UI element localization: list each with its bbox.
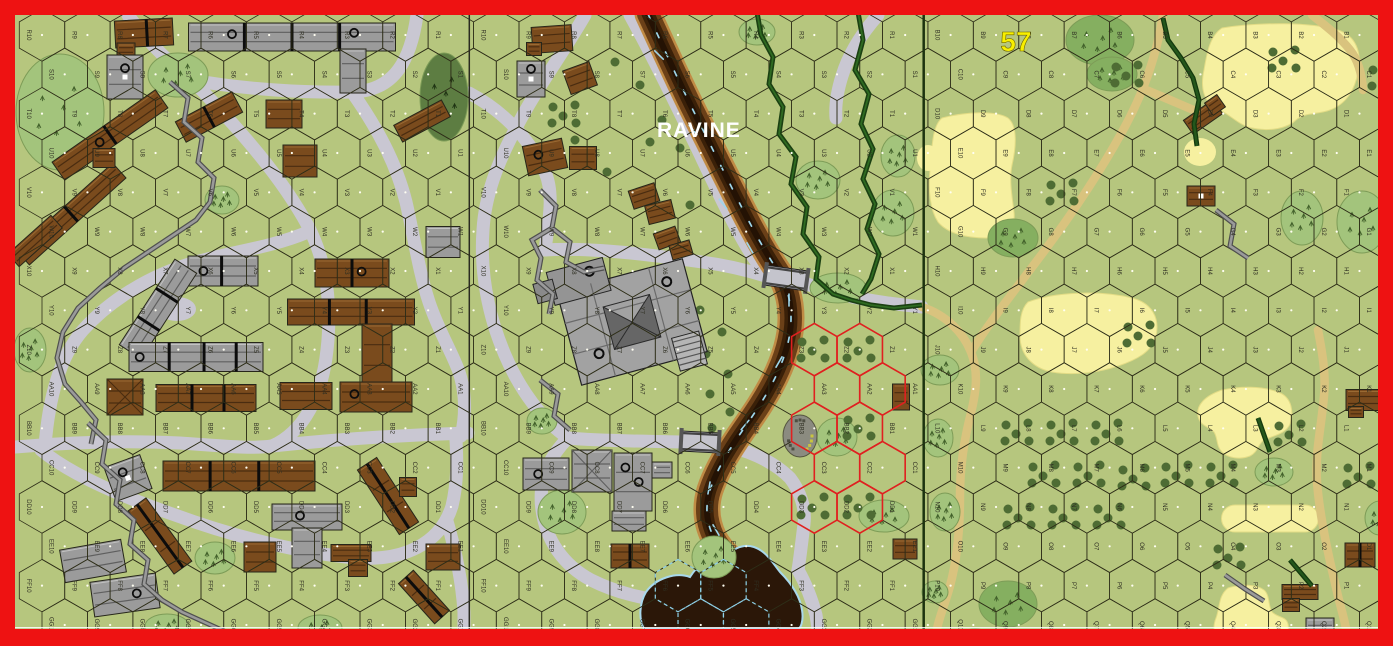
hex-center-dot xyxy=(1154,388,1156,390)
hex-center-dot xyxy=(631,191,633,193)
hex-coordinate-label: EE8 xyxy=(593,541,599,553)
hex-center-dot xyxy=(109,467,111,469)
hex-coordinate-label: E4 xyxy=(1229,149,1235,157)
wooden-building xyxy=(570,147,597,170)
wooden-building xyxy=(107,379,143,415)
game-map[interactable]: R10R9R8R7R6R5R4R3R2R1S10S9S8S7S6S5S4S3S2… xyxy=(0,0,1393,646)
hex-coordinate-label: R5 xyxy=(252,31,258,39)
hex-center-dot xyxy=(1154,309,1156,311)
hex-coordinate-label: DD6 xyxy=(661,501,667,514)
hex-coordinate-label: CC7 xyxy=(638,462,644,475)
hex-coordinate-label: S9 xyxy=(547,71,553,79)
hex-center-dot xyxy=(1131,349,1133,351)
hex-center-dot xyxy=(813,34,815,36)
hex-center-dot xyxy=(1063,624,1065,626)
hex-center-dot xyxy=(291,388,293,390)
hex-coordinate-label: FF6 xyxy=(207,580,213,591)
hex-coordinate-label: U10 xyxy=(502,147,508,159)
hex-center-dot xyxy=(745,624,747,626)
hex-coordinate-label: AA1 xyxy=(911,383,917,395)
hex-coordinate-label: Y9 xyxy=(547,307,553,315)
hex-coordinate-label: N3 xyxy=(1252,503,1258,511)
hex-center-dot xyxy=(41,191,43,193)
hex-center-dot xyxy=(518,545,520,547)
hex-coordinate-label: R8 xyxy=(570,31,576,39)
hex-center-dot xyxy=(609,388,611,390)
hex-coordinate-label: V6 xyxy=(661,189,667,197)
hex-center-dot xyxy=(631,585,633,587)
hex-center-dot xyxy=(1268,427,1270,429)
hex-coordinate-label: W7 xyxy=(638,227,644,237)
hex-center-dot xyxy=(223,113,225,115)
hex-center-dot xyxy=(654,388,656,390)
hex-coordinate-label: T10 xyxy=(25,108,31,119)
hex-center-dot xyxy=(1245,73,1247,75)
hex-center-dot xyxy=(1336,231,1338,233)
hex-center-dot xyxy=(722,427,724,429)
hex-center-dot xyxy=(495,270,497,272)
hex-center-dot xyxy=(631,506,633,508)
hex-coordinate-label: AA6 xyxy=(684,383,690,395)
hex-coordinate-label: F3 xyxy=(1252,189,1258,197)
wooden-building xyxy=(156,385,256,412)
hex-center-dot xyxy=(950,585,952,587)
hex-coordinate-label: AA3 xyxy=(366,383,372,395)
hex-coordinate-label: O10 xyxy=(956,541,962,553)
hex-coordinate-label: Z1 xyxy=(434,346,440,354)
hex-coordinate-label: K4 xyxy=(1229,385,1235,393)
hex-center-dot xyxy=(177,270,179,272)
hex-center-dot xyxy=(41,506,43,508)
hex-center-dot xyxy=(1154,545,1156,547)
hex-center-dot xyxy=(768,585,770,587)
hex-center-dot xyxy=(177,506,179,508)
hex-center-dot xyxy=(1040,506,1042,508)
hex-coordinate-label: R4 xyxy=(298,31,304,39)
hex-coordinate-label: T6 xyxy=(661,110,667,118)
hex-coordinate-label: DD1 xyxy=(434,501,440,514)
hex-center-dot xyxy=(1109,73,1111,75)
hex-coordinate-label: O2 xyxy=(1320,542,1326,551)
hex-coordinate-label: N9 xyxy=(979,503,985,511)
hex-coordinate-label: EE10 xyxy=(502,539,508,554)
hex-coordinate-label: W5 xyxy=(729,227,735,237)
hex-coordinate-label: L10 xyxy=(934,423,940,434)
hex-coordinate-label: M1 xyxy=(1365,463,1371,472)
hex-center-dot xyxy=(404,506,406,508)
hex-center-dot xyxy=(1358,506,1360,508)
hex-center-dot xyxy=(1040,270,1042,272)
hex-coordinate-label: P4 xyxy=(1206,582,1212,590)
hex-center-dot xyxy=(927,231,929,233)
hex-coordinate-label: D5 xyxy=(1161,110,1167,118)
hex-coordinate-label: H3 xyxy=(1252,267,1258,275)
hex-coordinate-label: BB5 xyxy=(252,423,258,435)
hex-coordinate-label: R7 xyxy=(616,31,622,39)
hex-coordinate-label: CC9 xyxy=(93,462,99,475)
hex-coordinate-label: Y4 xyxy=(320,307,326,315)
hex-center-dot xyxy=(995,427,997,429)
hex-coordinate-label: BB4 xyxy=(298,423,304,435)
hex-coordinate-label: W9 xyxy=(93,227,99,237)
hex-coordinate-label: V7 xyxy=(161,189,167,197)
hex-center-dot xyxy=(541,113,543,115)
hex-center-dot xyxy=(472,545,474,547)
hex-center-dot xyxy=(1018,309,1020,311)
hex-center-dot xyxy=(950,506,952,508)
hex-coordinate-label: DD10 xyxy=(25,499,31,515)
hex-center-dot xyxy=(404,34,406,36)
hex-center-dot xyxy=(950,349,952,351)
hex-center-dot xyxy=(1177,349,1179,351)
hex-center-dot xyxy=(336,152,338,154)
hex-coordinate-label: H10 xyxy=(934,265,940,277)
hex-center-dot xyxy=(836,624,838,626)
hex-center-dot xyxy=(541,270,543,272)
hex-coordinate-label: X2 xyxy=(388,267,394,275)
hex-coordinate-label: Y6 xyxy=(684,307,690,315)
hex-coordinate-label: Z8 xyxy=(570,346,576,354)
hex-coordinate-label: AA9 xyxy=(547,383,553,395)
hex-center-dot xyxy=(1131,427,1133,429)
hex-coordinate-label: W2 xyxy=(865,227,871,237)
hex-center-dot xyxy=(109,73,111,75)
hex-coordinate-label: S7 xyxy=(184,71,190,79)
hex-center-dot xyxy=(291,467,293,469)
hex-coordinate-label: AA10 xyxy=(48,382,54,397)
hex-center-dot xyxy=(495,34,497,36)
hex-coordinate-label: W8 xyxy=(139,227,145,237)
hex-center-dot xyxy=(41,427,43,429)
hex-center-dot xyxy=(586,270,588,272)
hex-center-dot xyxy=(1222,191,1224,193)
hex-center-dot xyxy=(745,388,747,390)
hex-coordinate-label: FF7 xyxy=(161,580,167,591)
hex-center-dot xyxy=(586,506,588,508)
hex-coordinate-label: O3 xyxy=(1274,542,1280,551)
hex-center-dot xyxy=(109,388,111,390)
hex-coordinate-label: FF5 xyxy=(252,580,258,591)
hex-center-dot xyxy=(927,467,929,469)
hex-center-dot xyxy=(700,624,702,626)
hex-coordinate-label: EE9 xyxy=(547,541,553,553)
hex-coordinate-label: H9 xyxy=(979,267,985,275)
hex-center-dot xyxy=(359,349,361,351)
hex-coordinate-label: N2 xyxy=(1297,503,1303,511)
hex-coordinate-label: R5 xyxy=(706,31,712,39)
hex-center-dot xyxy=(245,309,247,311)
hex-center-dot xyxy=(359,427,361,429)
hex-coordinate-label: EE8 xyxy=(139,541,145,553)
hex-coordinate-label: X1 xyxy=(434,267,440,275)
hex-center-dot xyxy=(881,73,883,75)
hex-coordinate-label: U9 xyxy=(547,149,553,157)
hex-center-dot xyxy=(904,191,906,193)
hex-center-dot xyxy=(382,231,384,233)
hex-coordinate-label: M3 xyxy=(1274,463,1280,472)
hex-center-dot xyxy=(109,545,111,547)
hex-center-dot xyxy=(64,231,66,233)
hex-coordinate-label: X2 xyxy=(843,267,849,275)
hex-center-dot xyxy=(1245,152,1247,154)
hex-coordinate-label: DD8 xyxy=(570,501,576,514)
hex-coordinate-label: L1 xyxy=(1342,425,1348,432)
hex-center-dot xyxy=(404,113,406,115)
hex-center-dot xyxy=(495,191,497,193)
hex-center-dot xyxy=(1268,585,1270,587)
hex-center-dot xyxy=(1063,73,1065,75)
hex-center-dot xyxy=(1199,73,1201,75)
hex-coordinate-label: Z4 xyxy=(752,346,758,354)
hex-center-dot xyxy=(64,152,66,154)
hex-center-dot xyxy=(904,34,906,36)
hex-coordinate-label: BB3 xyxy=(797,423,803,435)
hex-coordinate-label: N8 xyxy=(1024,503,1030,511)
hex-coordinate-label: DD3 xyxy=(343,501,349,514)
hex-center-dot xyxy=(813,349,815,351)
hex-center-dot xyxy=(677,506,679,508)
hex-coordinate-label: U1 xyxy=(911,149,917,157)
hex-center-dot xyxy=(518,467,520,469)
hex-center-dot xyxy=(109,152,111,154)
hex-center-dot xyxy=(1018,545,1020,547)
hex-center-dot xyxy=(472,388,474,390)
hex-center-dot xyxy=(1086,34,1088,36)
hex-center-dot xyxy=(1086,191,1088,193)
hex-coordinate-label: DD5 xyxy=(252,501,258,514)
hex-coordinate-label: W1 xyxy=(457,227,463,237)
hex-coordinate-label: D2 xyxy=(1297,110,1303,118)
hex-center-dot xyxy=(745,73,747,75)
hex-center-dot xyxy=(745,231,747,233)
hex-coordinate-label: H8 xyxy=(1024,267,1030,275)
hex-coordinate-label: V2 xyxy=(843,189,849,197)
hex-coordinate-label: EE4 xyxy=(320,541,326,553)
hex-coordinate-label: BB7 xyxy=(161,423,167,435)
hex-coordinate-label: W2 xyxy=(411,227,417,237)
hex-center-dot xyxy=(1313,191,1315,193)
hex-coordinate-label: E3 xyxy=(1274,149,1280,157)
hex-center-dot xyxy=(404,585,406,587)
hex-coordinate-label: Z8 xyxy=(116,346,122,354)
hex-center-dot xyxy=(359,585,361,587)
hex-coordinate-label: R4 xyxy=(752,31,758,39)
hex-center-dot xyxy=(1131,191,1133,193)
hex-coordinate-label: D3 xyxy=(1252,110,1258,118)
hex-coordinate-label: BB2 xyxy=(843,423,849,435)
hex-center-dot xyxy=(1268,349,1270,351)
hex-coordinate-label: V1 xyxy=(434,189,440,197)
hex-center-dot xyxy=(586,191,588,193)
hex-coordinate-label: L2 xyxy=(1297,425,1303,432)
hex-coordinate-label: G7 xyxy=(1093,228,1099,237)
hex-center-dot xyxy=(790,231,792,233)
hex-coordinate-label: B3 xyxy=(1252,31,1258,39)
hex-coordinate-label: BB3 xyxy=(343,423,349,435)
hex-center-dot xyxy=(359,191,361,193)
hex-coordinate-label: N7 xyxy=(1070,503,1076,511)
hex-coordinate-label: BB10 xyxy=(25,421,31,436)
hex-center-dot xyxy=(427,73,429,75)
hex-center-dot xyxy=(132,113,134,115)
hex-coordinate-label: X5 xyxy=(706,267,712,275)
hex-coordinate-label: EE2 xyxy=(411,541,417,553)
hex-coordinate-label: I7 xyxy=(1093,308,1099,314)
hex-center-dot xyxy=(1063,309,1065,311)
hex-coordinate-label: AA5 xyxy=(275,383,281,395)
hex-coordinate-label: Z5 xyxy=(706,346,712,354)
hex-center-dot xyxy=(86,34,88,36)
hex-center-dot xyxy=(859,191,861,193)
hex-coordinate-label: M9 xyxy=(1002,463,1008,472)
hex-center-dot xyxy=(86,113,88,115)
hex-center-dot xyxy=(836,388,838,390)
hex-center-dot xyxy=(586,113,588,115)
hex-coordinate-label: B1 xyxy=(1342,31,1348,39)
hex-center-dot xyxy=(927,73,929,75)
hex-center-dot xyxy=(972,231,974,233)
hex-center-dot xyxy=(1109,231,1111,233)
hex-center-dot xyxy=(245,388,247,390)
hex-center-dot xyxy=(336,545,338,547)
hex-coordinate-label: P1 xyxy=(1342,582,1348,590)
hex-coordinate-label: CC8 xyxy=(139,462,145,475)
hex-coordinate-label: EE1 xyxy=(457,541,463,553)
hex-center-dot xyxy=(563,388,565,390)
hex-coordinate-label: G1 xyxy=(1365,228,1371,237)
hex-center-dot xyxy=(223,34,225,36)
hex-center-dot xyxy=(223,585,225,587)
hex-center-dot xyxy=(904,506,906,508)
hex-coordinate-label: D6 xyxy=(1115,110,1121,118)
hex-center-dot xyxy=(472,467,474,469)
hex-center-dot xyxy=(541,585,543,587)
stone-building xyxy=(652,462,672,478)
hex-center-dot xyxy=(132,427,134,429)
hex-center-dot xyxy=(1222,506,1224,508)
hex-center-dot xyxy=(313,506,315,508)
hex-coordinate-label: R9 xyxy=(525,31,531,39)
hex-center-dot xyxy=(268,427,270,429)
hex-center-dot xyxy=(654,231,656,233)
stone-building xyxy=(292,528,322,568)
hex-coordinate-label: N10 xyxy=(934,501,940,513)
hex-coordinate-label: L9 xyxy=(979,425,985,432)
hex-coordinate-label: CC8 xyxy=(593,462,599,475)
hex-coordinate-label: O7 xyxy=(1093,542,1099,551)
hex-coordinate-label: FF10 xyxy=(479,579,485,594)
hex-coordinate-label: CC4 xyxy=(320,462,326,475)
hex-coordinate-label: U9 xyxy=(93,149,99,157)
hex-center-dot xyxy=(404,349,406,351)
hex-coordinate-label: X6 xyxy=(207,267,213,275)
hex-center-dot xyxy=(1222,34,1224,36)
hex-center-dot xyxy=(1086,113,1088,115)
hex-coordinate-label: E5 xyxy=(1183,149,1189,157)
hex-coordinate-label: O4 xyxy=(1229,542,1235,551)
hex-center-dot xyxy=(563,231,565,233)
hex-center-dot xyxy=(518,152,520,154)
hex-center-dot xyxy=(109,231,111,233)
hex-center-dot xyxy=(654,152,656,154)
hex-center-dot xyxy=(1018,388,1020,390)
hex-center-dot xyxy=(1290,309,1292,311)
hex-center-dot xyxy=(245,152,247,154)
hex-center-dot xyxy=(64,388,66,390)
hex-center-dot xyxy=(1336,624,1338,626)
hex-coordinate-label: F8 xyxy=(1024,189,1030,197)
hex-center-dot xyxy=(41,349,43,351)
hex-coordinate-label: Y3 xyxy=(366,307,372,315)
hex-center-dot xyxy=(1222,270,1224,272)
wooden-building xyxy=(893,384,910,410)
hex-coordinate-label: C2 xyxy=(1320,70,1326,78)
hex-center-dot xyxy=(268,34,270,36)
hex-coordinate-label: P10 xyxy=(934,580,940,591)
hex-coordinate-label: C10 xyxy=(956,69,962,81)
hex-center-dot xyxy=(972,309,974,311)
hex-coordinate-label: T2 xyxy=(388,110,394,118)
hex-center-dot xyxy=(1040,34,1042,36)
hex-center-dot xyxy=(1268,34,1270,36)
hex-coordinate-label: EE3 xyxy=(366,541,372,553)
hex-coordinate-label: EE10 xyxy=(48,539,54,554)
map-terrain-layer: R10R9R8R7R6R5R4R3R2R1S10S9S8S7S6S5S4S3S2… xyxy=(8,9,1393,646)
hex-center-dot xyxy=(1109,467,1111,469)
hex-coordinate-label: J4 xyxy=(1206,346,1212,353)
hex-center-dot xyxy=(790,545,792,547)
hex-coordinate-label: I2 xyxy=(1320,308,1326,314)
hex-coordinate-label: U6 xyxy=(684,149,690,157)
hex-center-dot xyxy=(154,467,156,469)
hex-coordinate-label: CC1 xyxy=(911,462,917,475)
hex-center-dot xyxy=(1131,270,1133,272)
hex-map-canvas[interactable]: R10R9R8R7R6R5R4R3R2R1S10S9S8S7S6S5S4S3S2… xyxy=(0,0,1393,646)
hex-center-dot xyxy=(450,270,452,272)
hex-coordinate-label: T9 xyxy=(70,110,76,118)
hex-coordinate-label: I4 xyxy=(1229,308,1235,314)
ravine-label: RAVINE xyxy=(657,119,741,142)
hex-coordinate-label: B9 xyxy=(979,31,985,39)
hex-center-dot xyxy=(313,34,315,36)
hex-coordinate-label: N6 xyxy=(1115,503,1121,511)
hex-coordinate-label: Z7 xyxy=(161,346,167,354)
hex-coordinate-label: C1 xyxy=(1365,70,1371,78)
hex-coordinate-label: T8 xyxy=(116,110,122,118)
hex-coordinate-label: I8 xyxy=(1047,308,1053,314)
hex-coordinate-label: EE4 xyxy=(775,541,781,553)
hex-center-dot xyxy=(177,349,179,351)
wooden-building xyxy=(244,542,276,572)
hex-center-dot xyxy=(1313,349,1315,351)
hex-coordinate-label: T7 xyxy=(161,110,167,118)
hex-coordinate-label: W9 xyxy=(547,227,553,237)
hex-coordinate-label: FF3 xyxy=(797,580,803,591)
hex-coordinate-label: V9 xyxy=(70,189,76,197)
hex-coordinate-label: DD1 xyxy=(888,501,894,514)
hex-coordinate-label: CC6 xyxy=(229,462,235,475)
hex-coordinate-label: G4 xyxy=(1229,228,1235,237)
hex-center-dot xyxy=(881,624,883,626)
hex-center-dot xyxy=(1040,427,1042,429)
hex-center-dot xyxy=(972,545,974,547)
hex-center-dot xyxy=(927,545,929,547)
hex-coordinate-label: J5 xyxy=(1161,346,1167,353)
hex-center-dot xyxy=(313,427,315,429)
hex-coordinate-label: U8 xyxy=(593,149,599,157)
hex-coordinate-label: B7 xyxy=(1070,31,1076,39)
hex-coordinate-label: V3 xyxy=(343,189,349,197)
